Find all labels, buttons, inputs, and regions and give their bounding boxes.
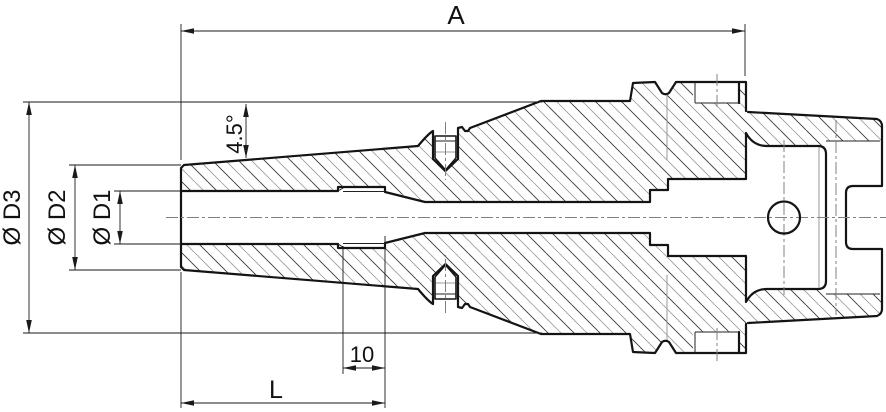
part-upper-half [181, 74, 882, 218]
label-A: A [447, 0, 465, 30]
label-D3: Ø D3 [0, 189, 26, 245]
label-10: 10 [350, 342, 374, 367]
section-fill [181, 233, 882, 353]
label-D1: Ø D1 [89, 189, 116, 245]
section-fill [181, 82, 882, 202]
drawing-stage: A Ø D3 Ø D2 Ø D1 4.5° 10 L [0, 0, 886, 412]
label-angle: 4.5° [222, 114, 247, 153]
label-L: L [269, 376, 283, 404]
part-lower-half [181, 218, 882, 362]
technical-drawing: A Ø D3 Ø D2 Ø D1 4.5° 10 L [0, 0, 886, 412]
label-D2: Ø D2 [44, 189, 71, 245]
